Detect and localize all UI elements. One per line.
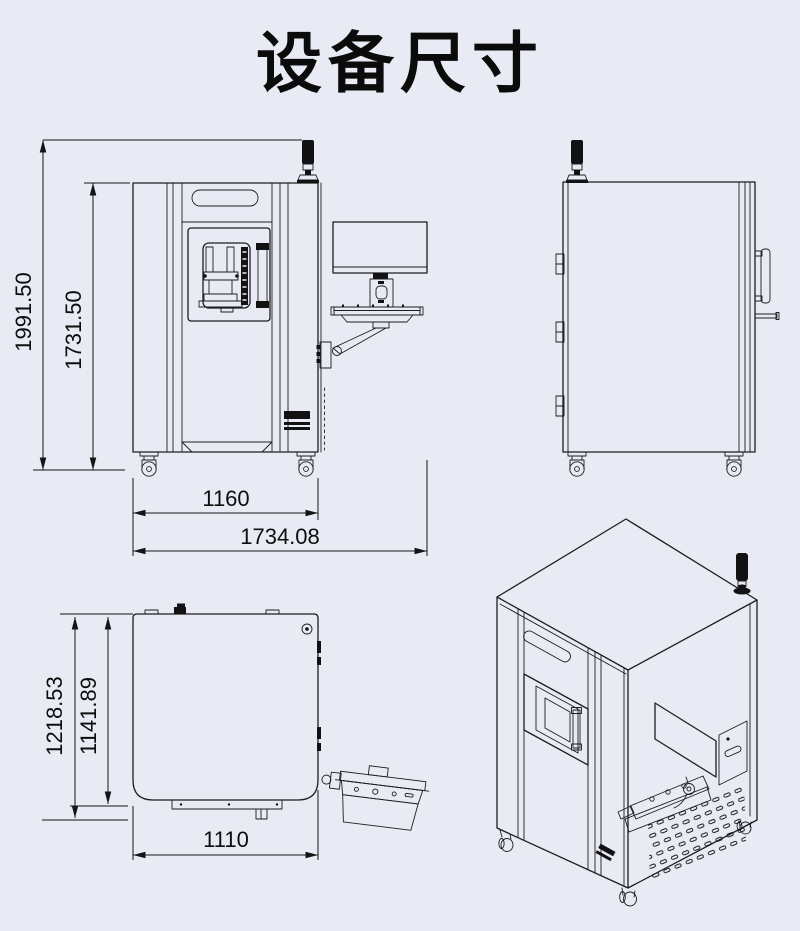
dim-label-total-width: 1734.08 xyxy=(240,524,320,549)
dim-label-body-depth: 1141.89 xyxy=(76,677,101,755)
arm-wall-mount xyxy=(320,342,331,368)
dim-label-total-depth: 1218.53 xyxy=(42,676,67,756)
dim-total-width: 1734.08 xyxy=(133,524,427,551)
keyboard-tray xyxy=(331,305,423,329)
cabinet-plan xyxy=(133,604,321,820)
linear-rail xyxy=(241,247,248,305)
monitor-arm xyxy=(317,328,387,368)
dim-label-body-height: 1731.50 xyxy=(61,290,86,370)
top-view: 1218.53 1141.89 xyxy=(42,604,431,861)
dim-label-body-width: 1160 xyxy=(202,486,249,511)
logo-mark xyxy=(596,844,616,861)
side-knob xyxy=(755,313,779,320)
viewing-window xyxy=(188,228,270,321)
monitor xyxy=(333,222,427,273)
front-view: 1991.50 1731.50 xyxy=(11,140,427,556)
dim-label-plan-width: 1110 xyxy=(203,827,249,852)
caster xyxy=(140,452,158,476)
signal-tower-iso xyxy=(734,553,751,595)
dimension-drawing: 1991.50 1731.50 xyxy=(0,0,800,931)
cabinet-front xyxy=(133,183,325,452)
dim-label-total-height: 1991.50 xyxy=(11,272,36,352)
monitor-bracket xyxy=(370,279,393,307)
isometric-view xyxy=(497,519,757,906)
side-hatch xyxy=(719,721,747,785)
monitor-assembly xyxy=(317,222,428,368)
tray-plan xyxy=(317,760,431,832)
caster-iso xyxy=(620,888,637,906)
signal-tower xyxy=(297,140,319,183)
door-handle xyxy=(755,249,770,303)
dim-body-height: 1731.50 xyxy=(61,183,130,470)
caster xyxy=(725,452,743,476)
caster-iso xyxy=(499,830,513,852)
viewing-window-iso xyxy=(524,674,588,765)
cabinet-side xyxy=(556,182,779,452)
vent-panel xyxy=(648,783,746,880)
top-vent-slot xyxy=(192,190,258,206)
signal-tower xyxy=(566,140,588,183)
monitor xyxy=(655,703,716,777)
caster xyxy=(297,452,315,476)
window-handle xyxy=(256,243,269,308)
caster xyxy=(568,452,586,476)
press-mechanism xyxy=(199,247,248,312)
equipment-dimensions-page: 设备尺寸 xyxy=(0,0,800,931)
side-view xyxy=(556,140,779,476)
dim-body-depth: 1141.89 xyxy=(70,617,128,806)
